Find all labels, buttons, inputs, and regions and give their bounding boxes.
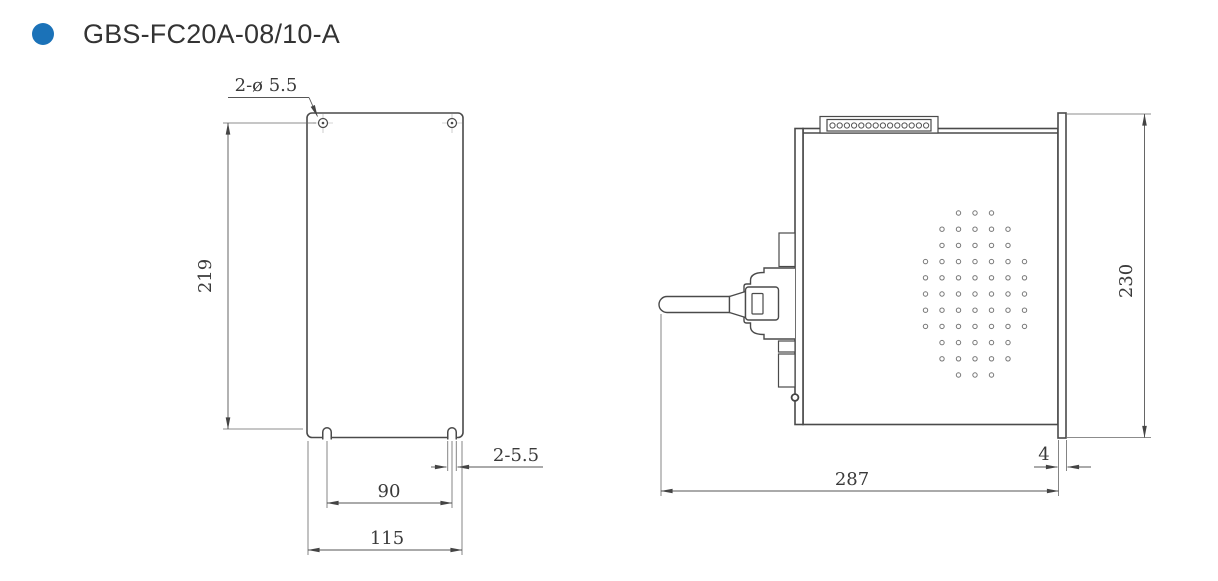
rear-lower-block: [779, 354, 796, 387]
handle-assembly: [659, 268, 795, 339]
label-bottom-slots: 2-5.5: [493, 445, 539, 466]
terminal-block: [820, 117, 938, 134]
front-height-dimension: 219: [195, 123, 316, 429]
front-view-drawing: 2-ø 5.5 219 2-5.5: [195, 75, 543, 555]
rear-upper-block: [779, 233, 795, 267]
bottom-slot-left: [323, 428, 332, 440]
panel-thickness-dimension: 4: [1034, 440, 1091, 471]
dim-slot-spacing: 90: [378, 481, 401, 502]
bottom-slot-right: [448, 428, 457, 440]
dim-side-height: 230: [1116, 264, 1137, 298]
dim-front-height: 219: [195, 259, 216, 293]
front-body-outline: [307, 113, 463, 438]
bottom-slots-callout: 2-5.5: [431, 441, 543, 471]
slot-spacing-dimension: 90: [327, 441, 452, 508]
handle-socket-slot: [752, 294, 763, 315]
rear-edge-strip: [795, 129, 803, 425]
dim-front-width: 115: [370, 528, 404, 549]
handle-flare: [730, 292, 746, 318]
front-panel-flange: [1058, 113, 1066, 438]
rear-screw-detail: [792, 394, 799, 401]
dim-panel-thickness: 4: [1038, 444, 1049, 465]
top-holes-callout: 2-ø 5.5: [228, 75, 318, 117]
label-top-holes: 2-ø 5.5: [235, 75, 298, 96]
handle-bar: [659, 297, 730, 313]
side-height-dimension: 230: [1067, 114, 1151, 438]
technical-drawing: 2-ø 5.5 219 2-5.5: [0, 0, 1218, 581]
side-view-drawing: 230 287 4: [659, 113, 1151, 496]
dim-side-depth: 287: [835, 469, 869, 490]
rear-lower-step: [779, 341, 796, 352]
product-dimension-page: GBS-FC20A-08/10-A: [0, 0, 1218, 581]
side-body-outline: [803, 129, 1058, 425]
